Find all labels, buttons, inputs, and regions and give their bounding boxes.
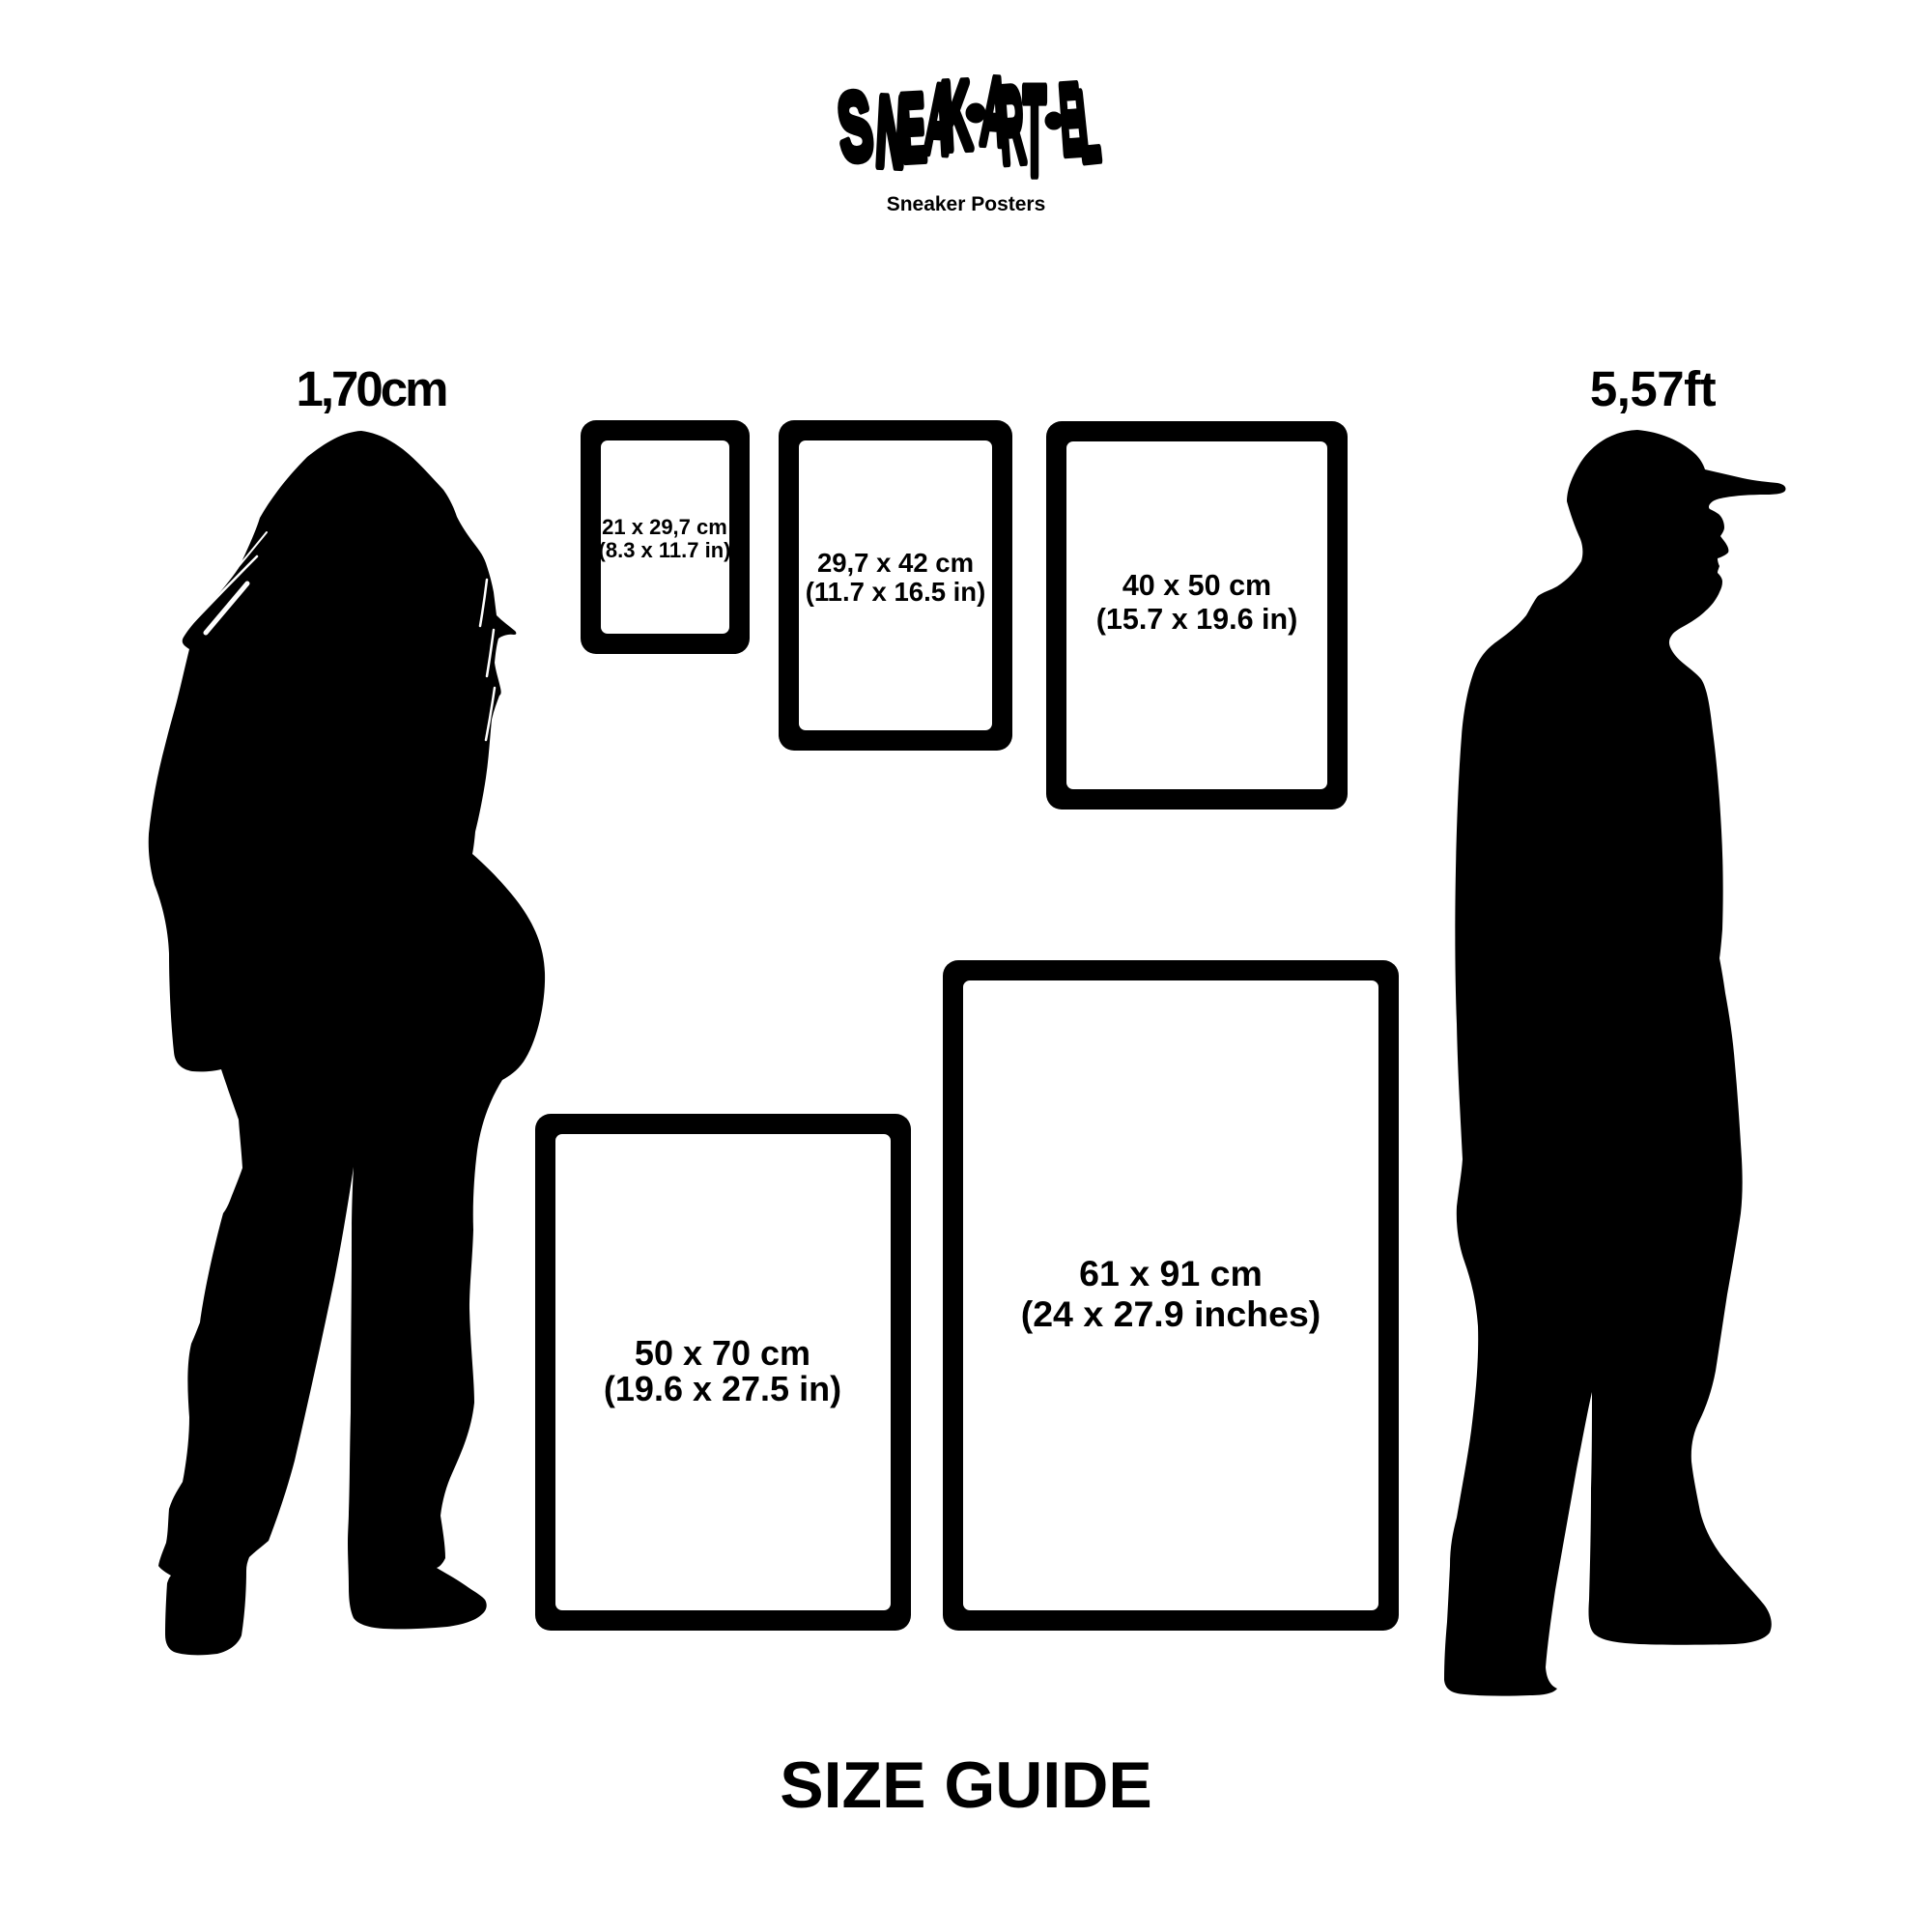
svg-text:40 x 50 cm: 40 x 50 cm [1122, 569, 1271, 602]
svg-text:(8.3 x 11.7 in): (8.3 x 11.7 in) [599, 538, 731, 562]
svg-text:T: T [1023, 60, 1046, 203]
svg-text:SIZE GUIDE: SIZE GUIDE [780, 1748, 1151, 1822]
svg-text:(11.7 x 16.5 in): (11.7 x 16.5 in) [806, 577, 986, 607]
svg-text:1,70cm: 1,70cm [297, 361, 447, 416]
svg-text:5,57ft: 5,57ft [1590, 361, 1717, 416]
svg-text:(19.6 x 27.5 in): (19.6 x 27.5 in) [604, 1369, 841, 1408]
svg-text:29,7 x 42 cm: 29,7 x 42 cm [817, 548, 974, 578]
svg-text:61 x 91 cm: 61 x 91 cm [1079, 1253, 1263, 1293]
svg-text:Sneaker Posters: Sneaker Posters [887, 193, 1046, 215]
svg-text:50 x 70 cm: 50 x 70 cm [635, 1333, 810, 1373]
svg-text:21 x 29,7 cm: 21 x 29,7 cm [602, 515, 727, 539]
svg-text:(24 x 27.9 inches): (24 x 27.9 inches) [1021, 1293, 1321, 1334]
svg-text:(15.7 x 19.6 in): (15.7 x 19.6 in) [1096, 603, 1298, 636]
